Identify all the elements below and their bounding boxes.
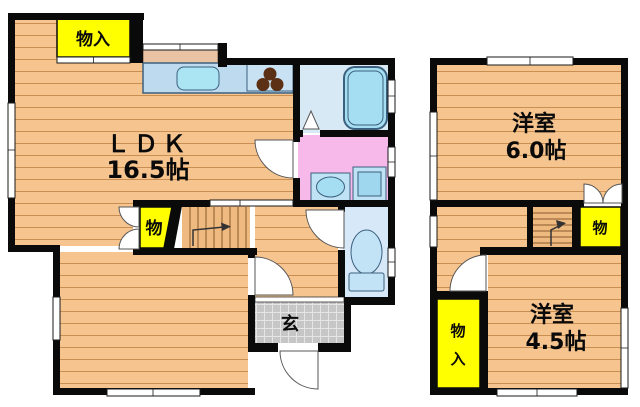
closet-tall-label-char1: 物 [450, 322, 465, 340]
toilet-tank-icon [349, 273, 384, 291]
entrance-label: 玄 [281, 313, 299, 335]
washing-machine-pan-inner [358, 172, 381, 196]
closet-tall-2f [437, 299, 480, 388]
ldk-left-window [8, 103, 15, 198]
entrance-step [255, 297, 344, 302]
kitchen-window [143, 44, 218, 50]
bathroom-window [388, 80, 395, 113]
ldk-floor-lower [60, 252, 248, 388]
second-floor: 洋室 6.0帖 物 物 入 洋室 4.5帖 [430, 57, 628, 396]
room-6-size-label: 6.0帖 [506, 139, 567, 164]
room-6-name-label: 洋室 [512, 111, 556, 137]
closet-stairs-label: 物 [146, 218, 163, 239]
ldk-size-label: 16.5帖 [106, 156, 189, 184]
closet-top-label: 物入 [76, 29, 110, 50]
entry-door-arc [280, 351, 318, 389]
hall-2f-window [430, 216, 437, 247]
vanity-sink-icon [317, 177, 345, 197]
room-45-size-label: 4.5帖 [526, 330, 587, 355]
hall-2f-floor-upper [437, 207, 527, 248]
closet-tall-label-char2: 入 [450, 350, 465, 368]
ldk-label: ＬＤＫ [106, 130, 190, 158]
entrance-tile-floor [255, 302, 344, 343]
toilet-bowl-icon [351, 230, 382, 274]
ldk-bottom-window [107, 389, 200, 396]
kitchen-pass-counter [143, 49, 218, 63]
floorplan-svg: 物入 ＬＤＫ 16.5帖 物 玄 [0, 0, 640, 407]
closet-hall-2f-label: 物 [592, 219, 607, 237]
ldk-hall-sliding-door [210, 200, 293, 206]
room-45-name-label: 洋室 [530, 302, 574, 328]
first-floor: 物入 ＬＤＫ 16.5帖 物 玄 [8, 13, 395, 396]
floorplan-image: 物入 ＬＤＫ 16.5帖 物 玄 [0, 0, 640, 407]
bathtub-icon [344, 67, 387, 129]
toilet-window [388, 248, 395, 277]
kitchen-sink-icon [177, 67, 219, 90]
ldk-lower-left-window [53, 297, 60, 340]
